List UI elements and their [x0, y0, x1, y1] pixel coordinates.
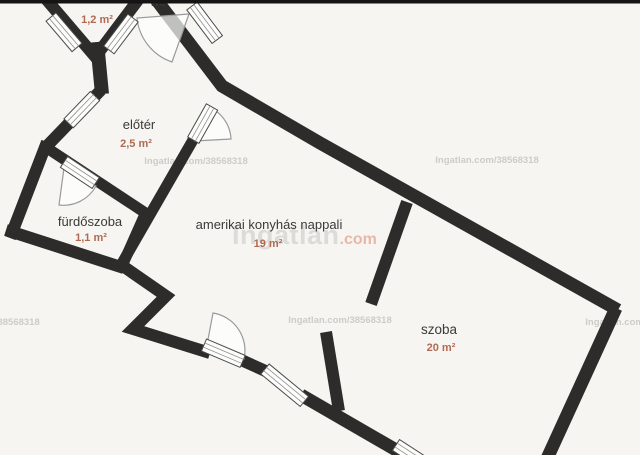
- room-label-nappali: amerikai konyhás nappali: [196, 217, 343, 232]
- photo-top-edge: [0, 0, 640, 4]
- floorplan-image: Ingatlan.com/38568318 Ingatlan.com/38568…: [0, 0, 640, 455]
- area-label-wc: 1,2 m²: [81, 14, 113, 26]
- area-label-szoba: 20 m²: [427, 342, 456, 354]
- wall: [545, 308, 616, 455]
- window-symbol: [392, 440, 431, 455]
- area-label-furdoszoba: 1,1 m²: [75, 232, 107, 244]
- wall: [326, 332, 339, 411]
- watermark-brand-red: .com: [340, 231, 377, 248]
- window-symbol: [261, 364, 309, 406]
- watermark-text: Ingatlan.com/38568318: [288, 315, 392, 326]
- wall: [371, 202, 407, 304]
- floorplan-canvas: Ingatlan.com/38568318 Ingatlan.com/38568…: [0, 0, 640, 455]
- wall: [301, 395, 403, 454]
- wall: [10, 142, 47, 238]
- watermark-text: Ingatlan.com/38568318: [0, 317, 40, 328]
- wall: [117, 262, 210, 353]
- room-label-furdoszoba: fürdőszoba: [58, 214, 123, 229]
- area-label-eloter: 2,5 m²: [120, 138, 152, 150]
- watermark-text: Ingatlan.com/38568318: [144, 156, 248, 167]
- watermark-text: Ingatlan.com/38568318: [435, 155, 539, 166]
- room-label-eloter: előtér: [123, 117, 156, 132]
- window-symbol: [64, 91, 100, 127]
- wall: [97, 42, 102, 94]
- room-label-szoba: szoba: [421, 322, 458, 337]
- area-label-nappali: 19 m²: [254, 238, 283, 250]
- room-labels: wc 1,2 m² előtér 2,5 m² fürdőszoba 1,1 m…: [58, 0, 458, 354]
